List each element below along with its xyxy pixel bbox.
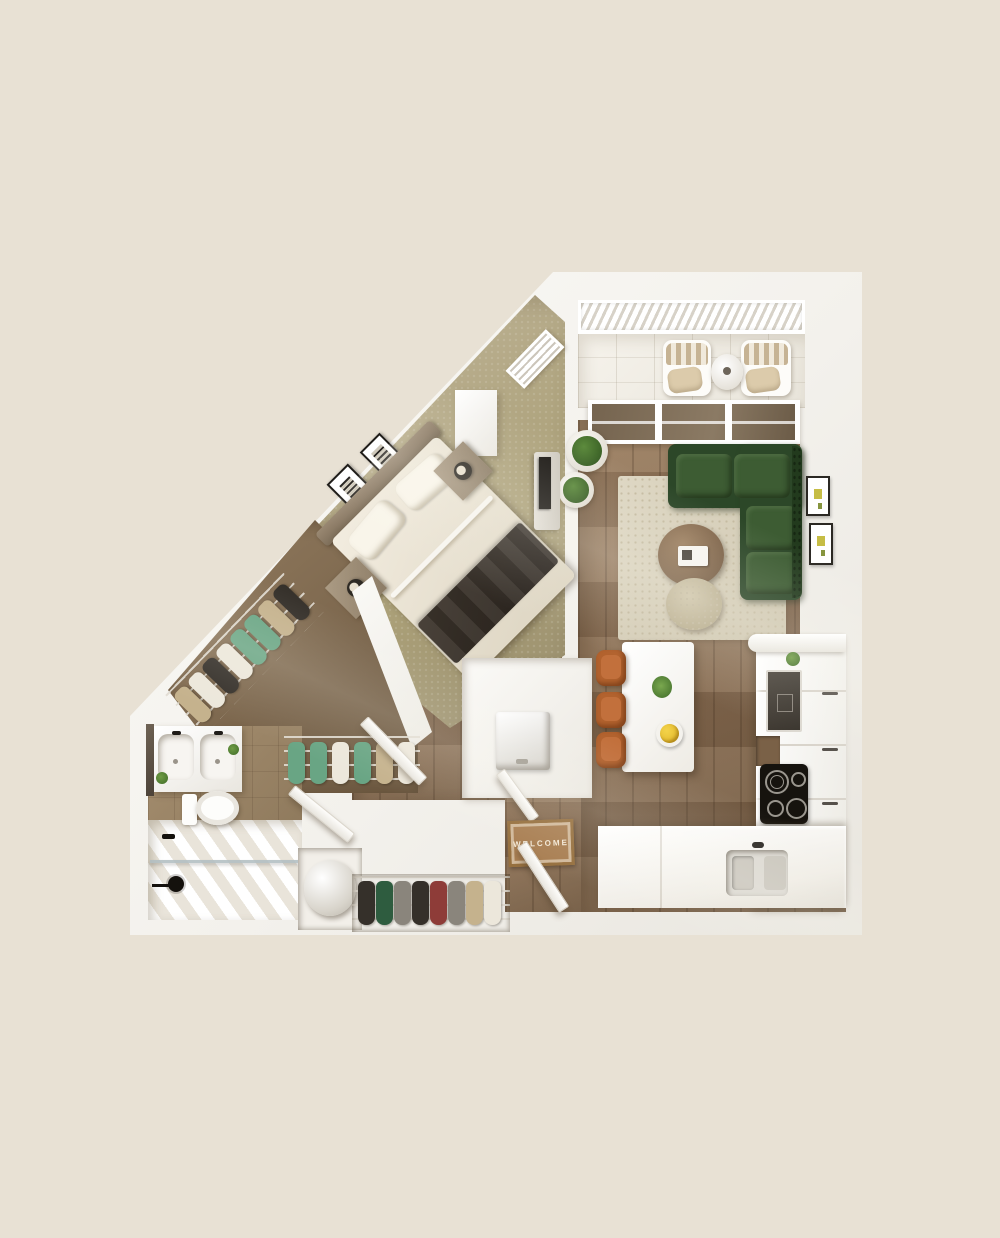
- tv: [539, 457, 551, 509]
- dining-chair: [596, 650, 626, 686]
- sofa-cushion: [734, 454, 790, 498]
- fruit-bowl: [656, 720, 683, 747]
- water-heater: [304, 860, 356, 916]
- shower-control: [162, 834, 175, 839]
- kitchen-faucet: [752, 842, 764, 848]
- hanging-garment: [394, 881, 411, 925]
- built-in-oven: [766, 670, 802, 732]
- hanging-garment: [358, 881, 375, 925]
- chair-seat-cushion: [666, 366, 703, 394]
- hanging-garment: [448, 881, 465, 925]
- burner-ring: [767, 800, 784, 817]
- chair-back-cushion: [744, 343, 788, 365]
- burner-ring: [765, 770, 789, 794]
- dining-chair: [596, 732, 626, 768]
- hanging-garment: [466, 881, 483, 925]
- kitchen-counter-end: [748, 634, 846, 652]
- plant-foliage: [572, 436, 601, 465]
- burner-ring: [791, 772, 806, 787]
- hanging-garment: [412, 881, 429, 925]
- wall-art-frame: [809, 523, 833, 565]
- kitchen-plant: [786, 652, 800, 666]
- sofa-tufted-arm: [792, 446, 802, 598]
- coat-closet-rack: [352, 874, 510, 932]
- kitchen-sink: [726, 850, 788, 896]
- balcony-lounge-chair: [663, 340, 711, 396]
- shower-head: [168, 876, 184, 892]
- welcome-mat: WELCOME: [507, 819, 575, 867]
- shower-glass-partition: [150, 860, 302, 863]
- coffee-table-book: [678, 546, 708, 566]
- sofa-cushion: [676, 454, 732, 498]
- hanging-garment: [288, 742, 305, 784]
- cabinet-handle: [822, 692, 838, 695]
- vanity-sink: [200, 734, 236, 780]
- sofa-cushion: [746, 552, 796, 594]
- burner-ring: [786, 798, 807, 819]
- hanging-garment: [484, 881, 501, 925]
- induction-cooktop: [760, 764, 808, 824]
- sofa-cushion: [746, 506, 796, 550]
- cabinet-handle: [822, 802, 838, 805]
- black-faucet: [172, 731, 181, 735]
- black-faucet: [214, 731, 223, 735]
- sliding-glass-door: [588, 400, 800, 444]
- bathroom-mirror: [146, 724, 154, 796]
- hanging-garment: [332, 742, 349, 784]
- chair-seat-cushion: [744, 366, 781, 394]
- kitchen-counter: [598, 826, 846, 908]
- open-shelf: [756, 736, 780, 766]
- flower-vase: [652, 676, 672, 698]
- toilet: [196, 791, 239, 825]
- vanity-plant: [228, 744, 239, 755]
- hanging-garment: [430, 881, 447, 925]
- cabinet-handle: [822, 748, 838, 751]
- balcony-railing: [578, 300, 805, 334]
- balcony-lounge-chair: [741, 340, 791, 396]
- chair-back-cushion: [666, 343, 708, 365]
- vanity-plant: [156, 772, 168, 784]
- balcony-side-table: [711, 354, 743, 390]
- toilet-tank: [182, 794, 197, 825]
- wall-art-frame: [806, 476, 830, 516]
- table-lamp: [450, 458, 475, 483]
- floorplan-canvas: WELCOME: [0, 0, 1000, 1238]
- dining-table: [622, 642, 694, 772]
- hanging-garment: [376, 881, 393, 925]
- potted-plant: [566, 430, 608, 472]
- hanging-garment: [354, 742, 371, 784]
- plant-foliage: [563, 477, 588, 502]
- washer: [496, 712, 550, 770]
- potted-plant: [558, 472, 594, 508]
- ottoman-pouf: [666, 578, 722, 630]
- hanging-garment: [310, 742, 327, 784]
- dining-chair: [596, 692, 626, 728]
